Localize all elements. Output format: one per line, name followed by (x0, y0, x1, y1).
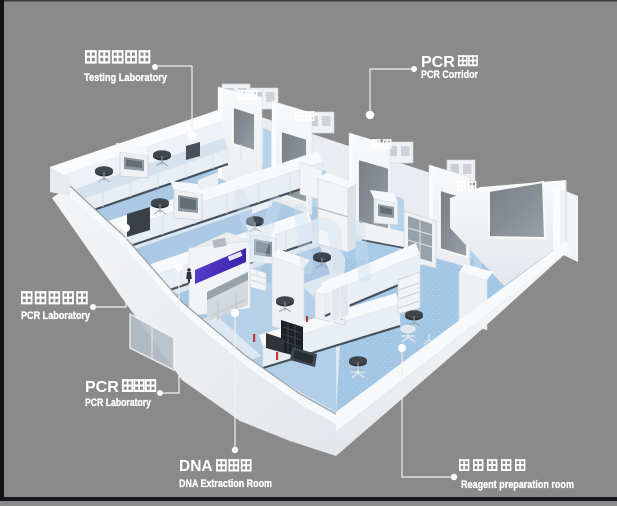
svg-text:PCR Laboratory: PCR Laboratory (85, 397, 151, 409)
svg-text:DNA: DNA (179, 458, 213, 475)
svg-text:DNA Extraction Room: DNA Extraction Room (179, 478, 272, 490)
svg-text:PCR Corridor: PCR Corridor (421, 69, 478, 81)
svg-text:Testing Laboratory: Testing Laboratory (84, 72, 167, 84)
svg-text:PCR: PCR (85, 379, 119, 396)
svg-text:Reagent preparation room: Reagent preparation room (461, 479, 574, 491)
svg-text:PCR Laboratory: PCR Laboratory (21, 310, 90, 322)
